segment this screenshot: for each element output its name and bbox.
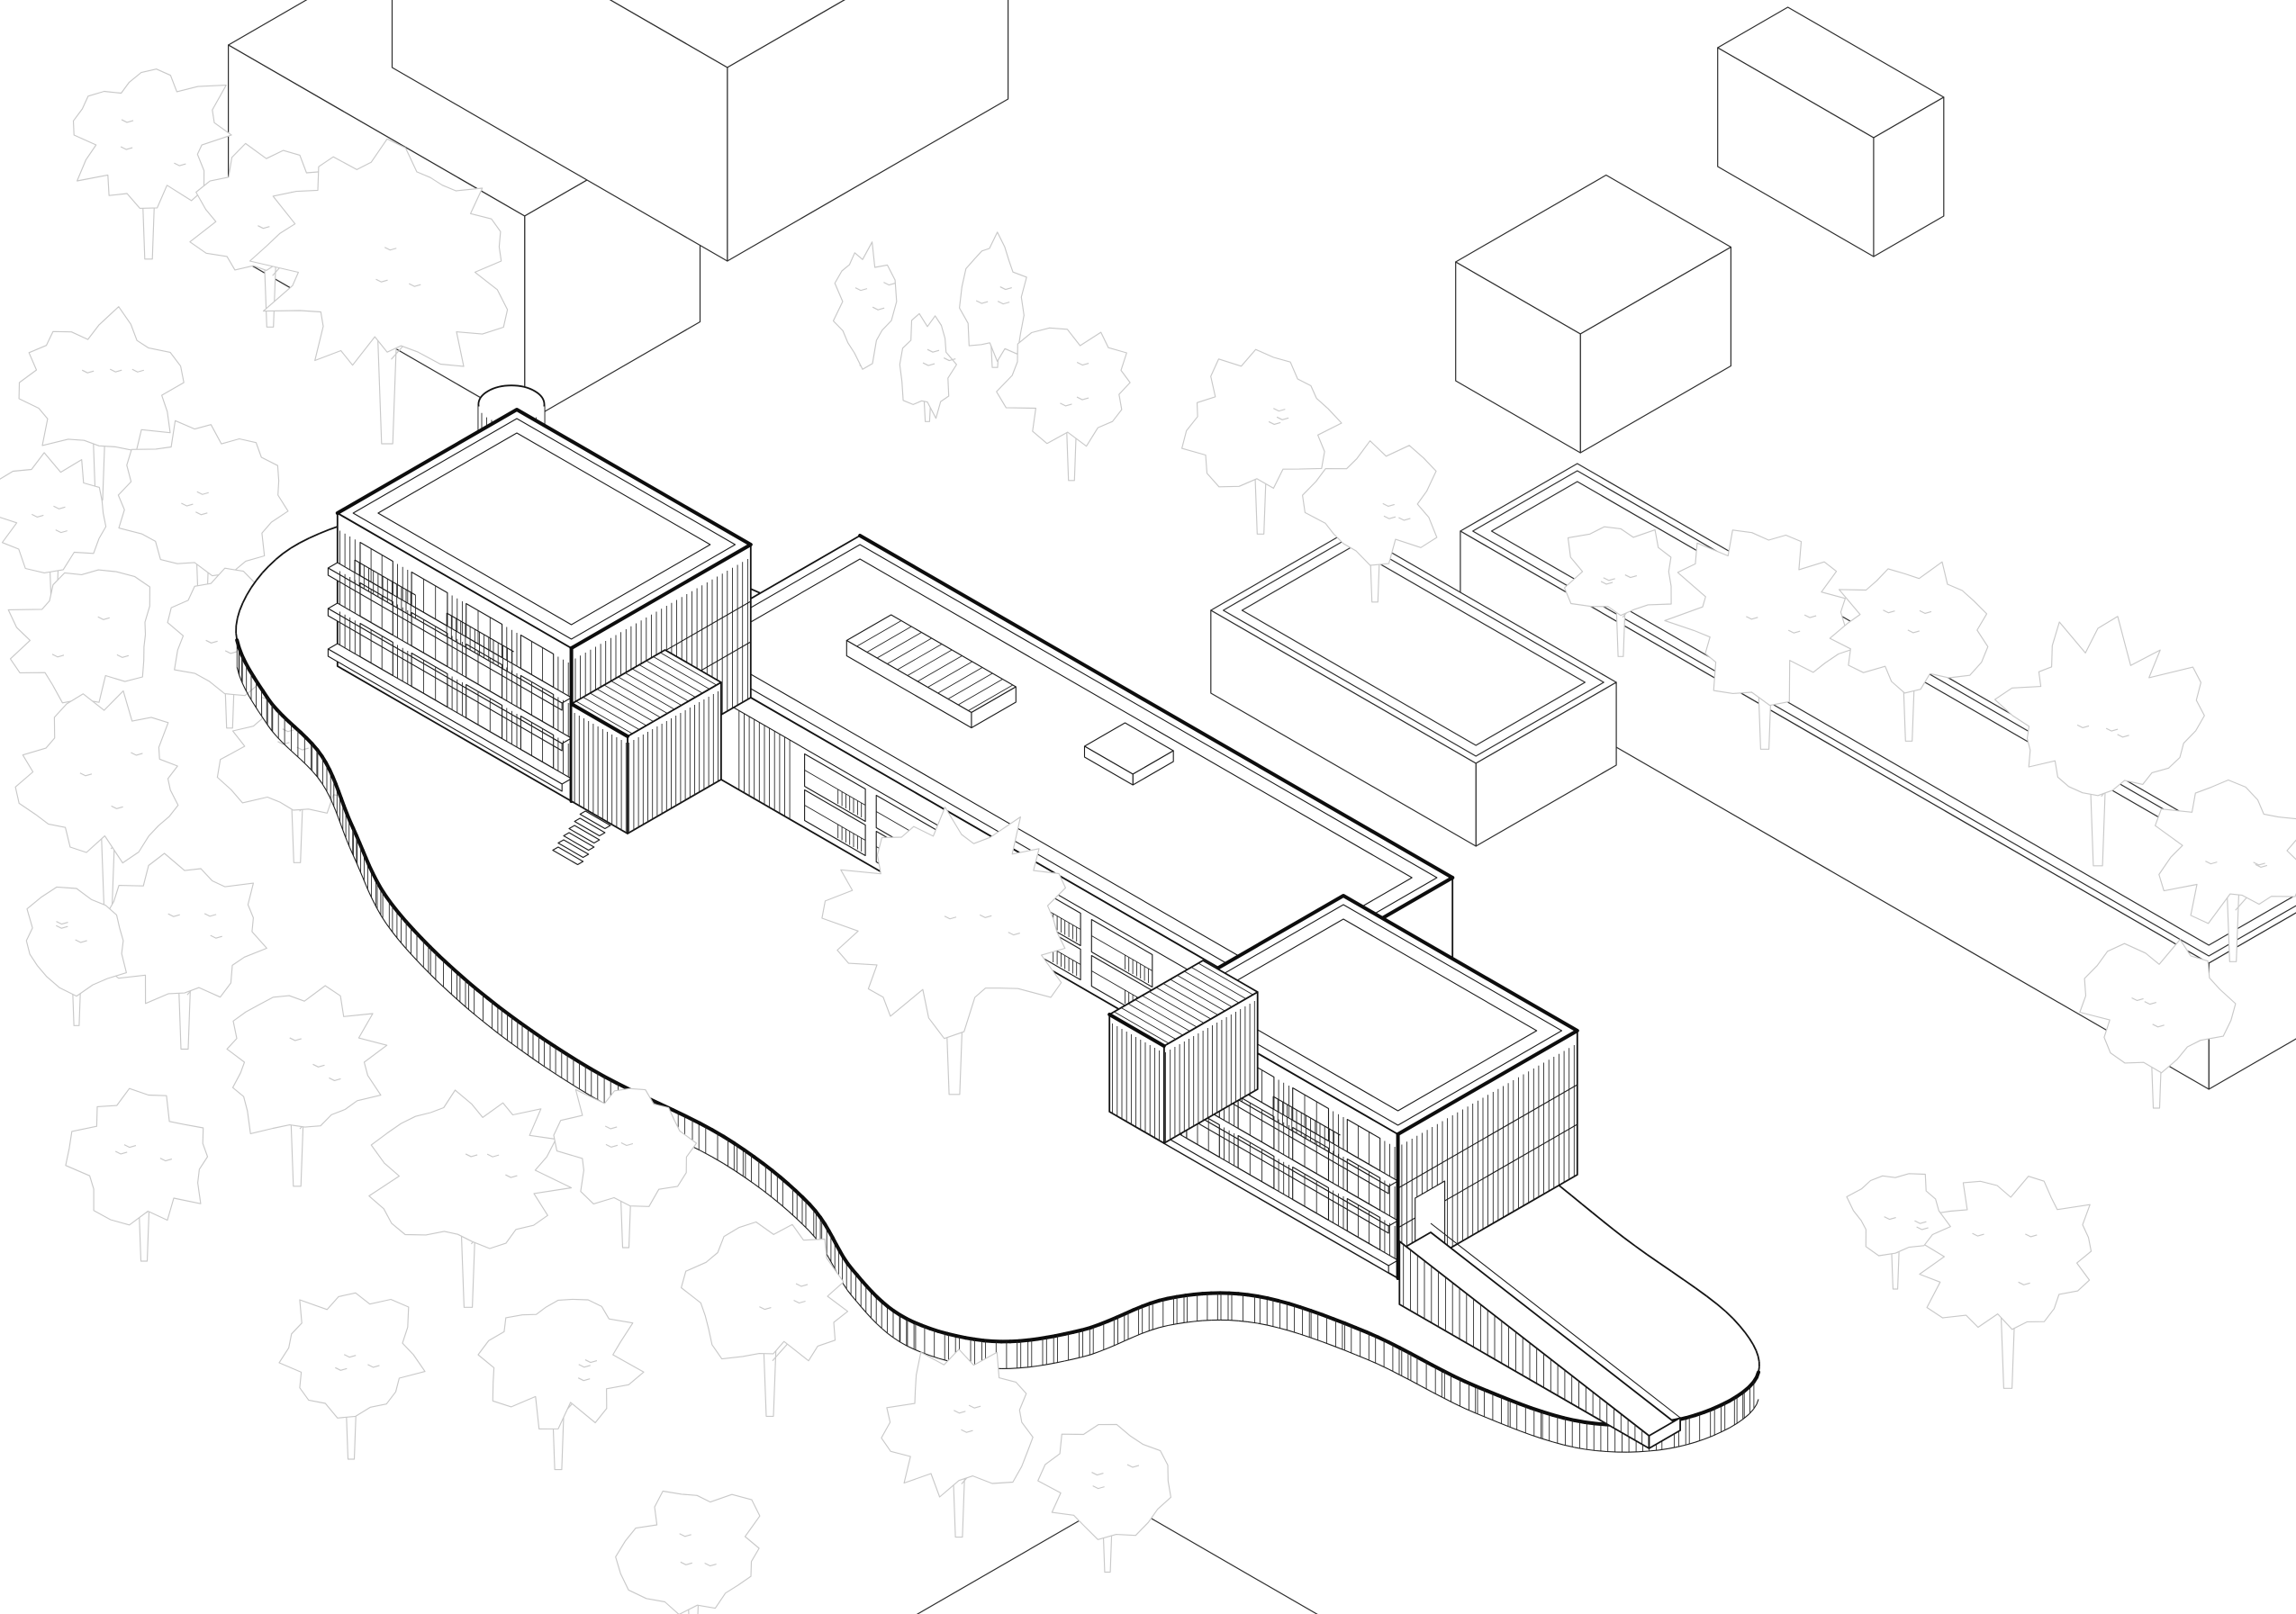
site-axonometric-stage [0,0,2296,1614]
context-building-bottom [883,1499,1429,1614]
tree [960,232,1027,367]
tree [279,1293,425,1459]
tree [881,1349,1033,1537]
tree [834,242,897,370]
tree [227,986,387,1186]
context-building-top-right [1456,176,1731,454]
tree [1920,1177,2092,1389]
tree [66,1088,208,1261]
tree [682,1222,848,1417]
axonometric-site-drawing [0,0,2296,1614]
tree [478,1299,644,1469]
tree [369,1090,572,1307]
tree [616,1492,760,1614]
tree [899,313,956,421]
context-building-top-right-corner [1718,7,1944,257]
